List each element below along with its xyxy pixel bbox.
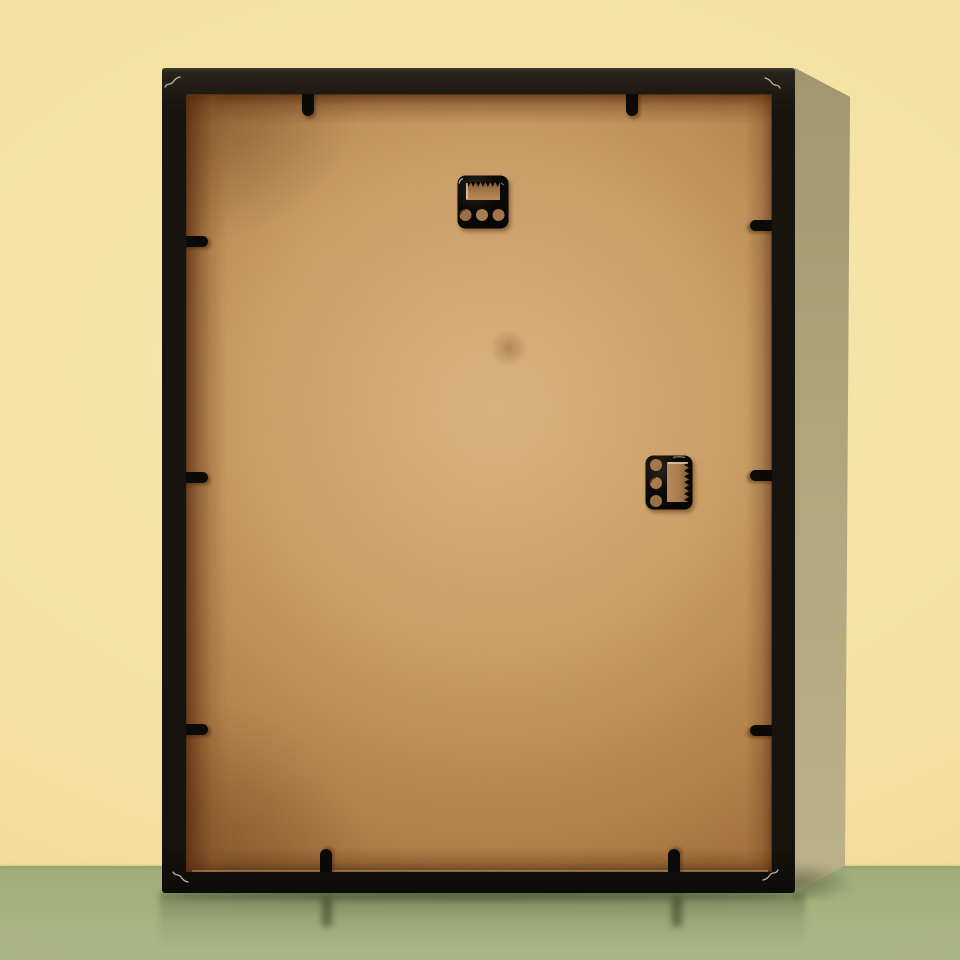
clip-reflection (672, 897, 682, 927)
picture-frame-back (162, 68, 795, 893)
retainer-clip-right-upper (750, 220, 772, 231)
scene (0, 0, 960, 960)
sawtooth-hanger-icon (457, 175, 509, 229)
retainer-clip-top-right (626, 94, 638, 116)
retainer-clip-left-middle (186, 472, 208, 483)
retainer-clip-left-lower (186, 724, 208, 735)
backing-board (186, 94, 772, 872)
corner-seam-mark (163, 73, 183, 93)
frame-side-panel-shadow (795, 68, 850, 893)
clip-reflection (322, 897, 332, 927)
retainer-clip-bottom-left (320, 849, 332, 872)
sawtooth-hanger-icon (645, 455, 693, 510)
floor-reflection (160, 893, 805, 948)
backing-bottom-highlight (192, 870, 768, 872)
retainer-clip-right-middle (750, 470, 772, 481)
retainer-clip-left-upper (186, 236, 208, 247)
backing-stain (486, 330, 532, 366)
retainer-clip-right-lower (750, 725, 772, 736)
retainer-clip-top-left (302, 94, 314, 116)
corner-seam-mark (762, 74, 782, 94)
corner-seam-mark (171, 866, 191, 886)
corner-seam-mark (760, 864, 780, 884)
retainer-clip-bottom-right (668, 849, 680, 872)
